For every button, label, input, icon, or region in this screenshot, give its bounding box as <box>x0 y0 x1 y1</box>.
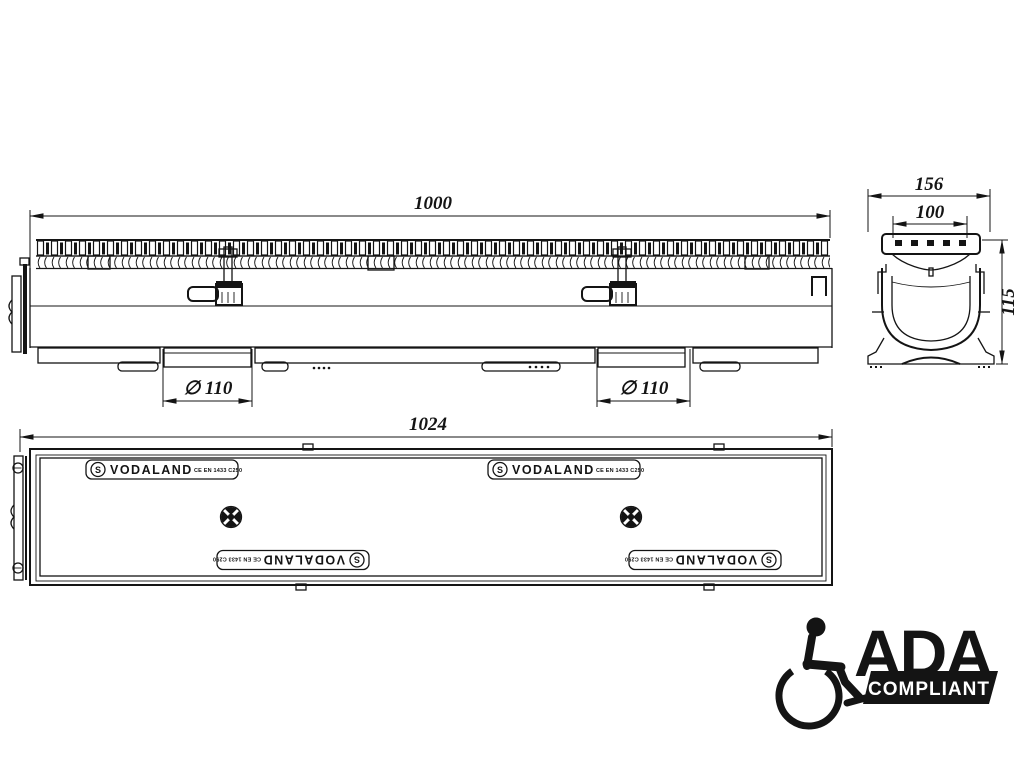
certification-text: CE EN 1433 C250 <box>194 468 242 474</box>
outlet-left-dimension-label: ∅ 110 <box>184 378 233 399</box>
vodaland-plaque-bottom-right: S VODALAND CE EN 1433 C250 <box>625 551 781 570</box>
certification-text: CE EN 1433 C250 <box>625 556 673 562</box>
channel-body-outline <box>30 268 832 348</box>
side-elevation-view: 1000 <box>9 193 832 407</box>
dimension-opening-100: 100 <box>893 202 967 238</box>
outlet-right-dimension-label: ∅ 110 <box>620 378 669 399</box>
brand-text: VODALAND <box>674 553 757 567</box>
vodaland-logo-icon: S <box>493 463 507 477</box>
svg-text:S: S <box>497 465 503 475</box>
plan-end-bracket <box>11 456 26 580</box>
section-channel-body <box>868 264 994 367</box>
grate-screw-right <box>621 507 642 528</box>
section-opening-label: 100 <box>916 202 945 223</box>
compliant-label: COMPLIANT <box>868 679 990 700</box>
cross-section-view: 156 100 115 <box>868 174 1019 367</box>
vodaland-plaque-top-left: S VODALAND CE EN 1433 C250 <box>86 460 242 479</box>
dimension-height-115: 115 <box>982 240 1019 364</box>
length-dimension-label: 1000 <box>414 193 453 214</box>
section-width-label: 156 <box>915 174 944 195</box>
section-height-label: 115 <box>998 288 1019 316</box>
anchor-clip-mark <box>812 277 826 296</box>
svg-text:S: S <box>354 555 360 565</box>
outlet-stub-left <box>164 348 251 367</box>
section-grate-cap <box>882 234 980 276</box>
grate-side-profile <box>36 240 832 270</box>
ada-compliant-badge: ADA COMPLIANT <box>767 616 998 738</box>
vodaland-plaque-top-right: S VODALAND CE EN 1433 C250 <box>488 460 644 479</box>
plan-length-label: 1024 <box>409 414 447 435</box>
technical-drawing-page: 1000 <box>0 0 1024 768</box>
svg-text:S: S <box>766 555 772 565</box>
plan-view: 1024 <box>11 414 832 590</box>
vodaland-plaque-bottom-left: S VODALAND CE EN 1433 C250 <box>213 551 369 570</box>
outlet-stub-right <box>598 348 685 367</box>
certification-text: CE EN 1433 C250 <box>213 556 261 562</box>
dimension-outlet-right: ∅ 110 <box>597 349 690 407</box>
grate-screw-left <box>221 507 242 528</box>
vodaland-logo-icon: S <box>91 463 105 477</box>
dimension-outlet-left: ∅ 110 <box>163 349 252 407</box>
brand-text: VODALAND <box>262 553 345 567</box>
dimension-length-1024: 1024 <box>20 414 832 452</box>
vodaland-logo-icon: S <box>350 553 364 567</box>
svg-text:S: S <box>95 465 101 475</box>
brand-text: VODALAND <box>110 463 193 477</box>
certification-text: CE EN 1433 C250 <box>596 468 644 474</box>
end-cap-left <box>9 258 29 354</box>
vodaland-logo-icon: S <box>762 553 776 567</box>
brand-text: VODALAND <box>512 463 595 477</box>
channel-base-hatched <box>38 348 818 371</box>
